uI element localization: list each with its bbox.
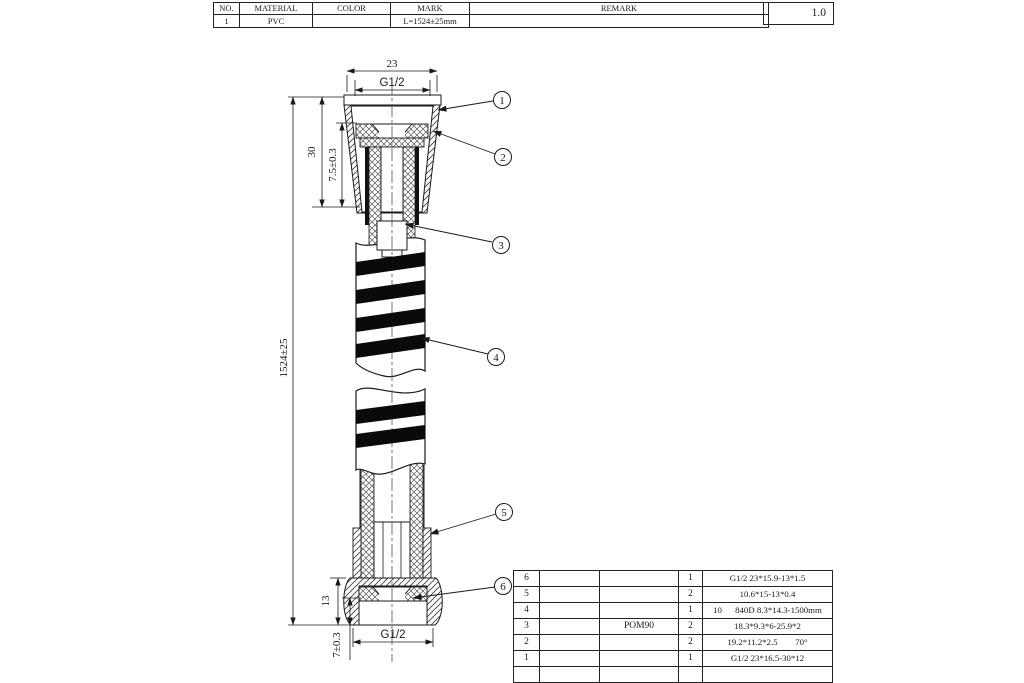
bottom-nut [344, 578, 443, 625]
part-qty [679, 667, 703, 683]
dim-label-depth-bottom: 7±0.3 [331, 632, 343, 658]
part-no: 2 [514, 635, 540, 651]
part-no: 5 [514, 587, 540, 603]
part-a [540, 667, 600, 683]
part-material [600, 587, 679, 603]
callout-3-label: 3 [498, 240, 504, 252]
dim-label-depth-top: 7.5±0.3 [327, 148, 339, 182]
parts-row-empty [514, 667, 833, 683]
callout-4-label: 4 [493, 352, 499, 364]
part-a [540, 603, 600, 619]
callout-6-label: 6 [500, 581, 506, 593]
parts-row-2: 2 2 19.2*11.2*2.5 70° [514, 635, 833, 651]
part-material: POM90 [600, 619, 679, 635]
callout-balloons: 1 2 3 4 5 6 [488, 92, 513, 595]
leader-4 [421, 338, 488, 354]
parts-row-3: 3 POM90 2 18.3*9.3*6-25.9*2 [514, 619, 833, 635]
hose-drawing: 23 G1/2 30 7.5±0.3 1524±25 13 7±0.3 G1/2… [0, 0, 1024, 683]
part-spec: 19.2*11.2*2.5 70° [703, 635, 833, 651]
leader-1 [438, 101, 493, 110]
parts-row-1: 1 1 G1/2 23*16.5-30*12 [514, 651, 833, 667]
dim-label-thread-top: G1/2 [380, 77, 405, 89]
callout-2-label: 2 [500, 152, 506, 164]
part-qty: 2 [679, 635, 703, 651]
part-qty: 2 [679, 587, 703, 603]
callout-1-label: 1 [499, 95, 505, 107]
part-qty: 1 [679, 651, 703, 667]
part-a [540, 587, 600, 603]
part-qty: 1 [679, 571, 703, 587]
part-material [600, 635, 679, 651]
dim-label-23: 23 [387, 58, 399, 70]
callout-2: 2 [495, 149, 512, 166]
part-spec: G1/2 23*15.9-13*1.5 [703, 571, 833, 587]
part-material [600, 651, 679, 667]
part-no: 1 [514, 651, 540, 667]
part-material [600, 603, 679, 619]
callout-4: 4 [488, 349, 505, 366]
part-a [540, 651, 600, 667]
part-spec: 18.3*9.3*6-25.9*2 [703, 619, 833, 635]
callout-1: 1 [494, 92, 511, 109]
part-a [540, 635, 600, 651]
dim-label-length: 1524±25 [278, 338, 290, 378]
part-spec: 10 840D 8.3*14.3-1500mm [703, 603, 833, 619]
parts-row-6: 6 1 G1/2 23*15.9-13*1.5 [514, 571, 833, 587]
parts-row-4: 4 1 10 840D 8.3*14.3-1500mm [514, 603, 833, 619]
part-spec [703, 667, 833, 683]
part-material [600, 667, 679, 683]
callout-3: 3 [493, 237, 510, 254]
callout-5: 5 [496, 504, 513, 521]
callout-5-label: 5 [501, 507, 507, 519]
dim-label-13: 13 [320, 595, 332, 607]
parts-row-5: 5 2 10.6*15-13*0.4 [514, 587, 833, 603]
part-material [600, 571, 679, 587]
part-qty: 1 [679, 603, 703, 619]
dim-label-30: 30 [306, 146, 318, 158]
part-no: 4 [514, 603, 540, 619]
part-a [540, 619, 600, 635]
part-spec: G1/2 23*16.5-30*12 [703, 651, 833, 667]
drawing-sheet: NO. MATERIAL COLOR MARK REMARK 1 PVC L=1… [0, 0, 1024, 683]
parts-table: 6 1 G1/2 23*15.9-13*1.5 5 2 10.6*15-13*0… [513, 570, 833, 683]
part-no: 3 [514, 619, 540, 635]
leader-5 [430, 514, 496, 534]
callout-6: 6 [495, 578, 512, 595]
part-no [514, 667, 540, 683]
part-no: 6 [514, 571, 540, 587]
dim-label-thread-bottom: G1/2 [381, 629, 406, 641]
part-qty: 2 [679, 619, 703, 635]
top-fitting-nut [344, 95, 441, 213]
leader-2 [433, 131, 495, 154]
part-spec: 10.6*15-13*0.4 [703, 587, 833, 603]
part-a [540, 571, 600, 587]
